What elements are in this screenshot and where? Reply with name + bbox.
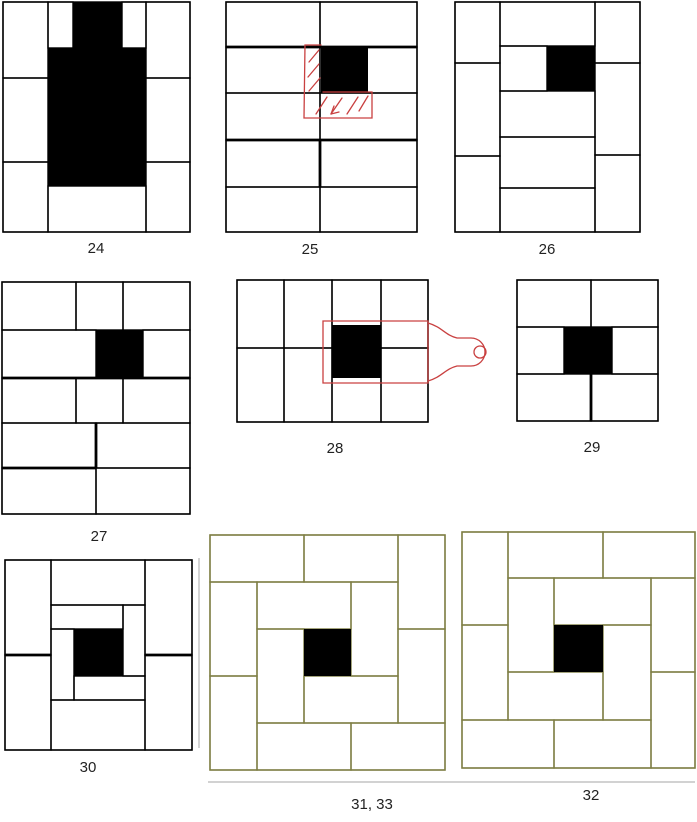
tile-cell (3, 78, 48, 162)
puzzle-diagrams-page: 24 25 26 27 28 29 30 31, 33 32 (0, 0, 697, 822)
black-square (554, 625, 603, 672)
tile-cell (2, 282, 76, 330)
tile-cell (146, 78, 190, 162)
tile-cell (96, 468, 190, 514)
tile-cell (455, 2, 500, 63)
black-square (321, 47, 368, 93)
diagram-26 (455, 2, 640, 232)
tile-cell (237, 348, 284, 422)
tile-cell (595, 63, 640, 155)
tile-cell (51, 560, 145, 605)
caption-28: 28 (299, 440, 371, 457)
tile-cell (76, 282, 123, 330)
diagrams-svg (0, 0, 697, 822)
tile-cell (2, 378, 76, 423)
tile-cell (3, 2, 48, 78)
black-square (74, 629, 123, 676)
black-square (73, 2, 122, 48)
tile-cell (398, 629, 445, 723)
diagram-24 (3, 2, 190, 232)
tile-cell (96, 423, 190, 468)
tile-cell (5, 655, 51, 750)
tile-cell (508, 578, 554, 672)
caption-24: 24 (60, 240, 132, 257)
tile-cell (123, 378, 190, 423)
tile-cell (237, 280, 284, 348)
tile-cell (517, 327, 564, 374)
tile-cell (508, 672, 603, 720)
tile-cell (554, 720, 651, 768)
tile-cell (500, 46, 547, 91)
caption-27: 27 (63, 528, 135, 545)
tile-cell (651, 672, 695, 768)
tile-cell (462, 532, 508, 625)
tile-cell (320, 93, 417, 140)
tile-cell (591, 280, 658, 327)
diagram-31-33 (210, 535, 445, 770)
tile-cell (143, 330, 190, 378)
red-annotation (359, 96, 368, 111)
black-square (564, 327, 612, 374)
red-annotation (309, 50, 319, 62)
tile-cell (51, 605, 123, 629)
tile-cell (257, 629, 304, 723)
tile-cell (304, 676, 398, 723)
diagram-artifacts (199, 558, 695, 782)
red-annotation (331, 98, 342, 114)
tile-cell (145, 655, 192, 750)
tile-cell (210, 676, 257, 770)
tile-cell (320, 140, 417, 187)
tile-cell (146, 162, 190, 232)
tile-cell (595, 155, 640, 232)
diagram-25 (226, 2, 417, 232)
tile-cell (123, 605, 145, 676)
tile-cell (603, 625, 651, 720)
red-annotation (308, 64, 319, 77)
tile-cell (320, 2, 417, 47)
caption-30: 30 (52, 759, 124, 776)
tile-cell (5, 560, 51, 655)
black-square (48, 48, 146, 186)
tile-cell (48, 186, 146, 232)
red-annotation (316, 97, 327, 114)
tile-cell (351, 723, 445, 770)
red-annotation (309, 78, 320, 91)
tile-cell (500, 91, 595, 137)
tile-cell (257, 582, 351, 629)
red-annotation (347, 97, 358, 114)
caption-26: 26 (511, 241, 583, 258)
tile-cell (381, 348, 428, 422)
tile-cell (595, 2, 640, 63)
tile-cell (500, 2, 595, 46)
tile-cell (500, 137, 595, 188)
tile-cell (226, 47, 320, 93)
caption-29: 29 (556, 439, 628, 456)
tile-cell (2, 423, 96, 468)
tile-cell (462, 625, 508, 720)
diagram-30 (5, 560, 192, 750)
tile-cell (455, 156, 500, 232)
tile-cell (651, 578, 695, 672)
tile-cell (2, 468, 96, 514)
diagram-32 (462, 532, 695, 768)
tile-cell (603, 532, 695, 578)
tile-cell (226, 187, 320, 232)
tile-cell (51, 629, 74, 700)
tile-cell (508, 532, 603, 578)
tile-cell (48, 2, 73, 48)
outer-frame (455, 2, 640, 232)
tile-cell (74, 676, 145, 700)
tile-cell (146, 2, 190, 78)
caption-25: 25 (274, 241, 346, 258)
tile-cell (226, 93, 320, 140)
tile-cell (591, 374, 658, 421)
tile-cell (226, 2, 320, 47)
outer-frame (226, 2, 417, 232)
diagram-29 (517, 280, 658, 421)
tile-cell (612, 327, 658, 374)
tile-cell (500, 188, 595, 232)
tile-cell (284, 280, 332, 348)
tile-cell (517, 374, 591, 421)
diagram-27 (2, 282, 190, 514)
tile-cell (2, 330, 96, 378)
black-square (96, 330, 143, 378)
tile-cell (123, 282, 190, 330)
tile-cell (51, 700, 145, 750)
diagram-28 (237, 280, 486, 422)
black-square (547, 46, 595, 91)
tile-cell (257, 723, 351, 770)
caption-32: 32 (555, 787, 627, 804)
red-annotation (428, 323, 485, 381)
tile-cell (210, 582, 257, 676)
caption-31-33: 31, 33 (336, 796, 408, 813)
tile-cell (284, 348, 332, 422)
black-square (332, 325, 381, 378)
tile-cell (210, 535, 304, 582)
tile-cell (304, 535, 398, 582)
tile-cell (145, 560, 192, 655)
tile-cell (462, 720, 554, 768)
black-square (304, 629, 351, 676)
tile-cell (226, 140, 320, 187)
tile-cell (351, 582, 398, 676)
tile-cell (554, 578, 651, 625)
tile-cell (517, 280, 591, 327)
tile-cell (3, 162, 48, 232)
tile-cell (320, 187, 417, 232)
tile-cell (398, 535, 445, 629)
tile-cell (455, 63, 500, 156)
tile-cell (381, 280, 428, 348)
tile-cell (122, 2, 146, 48)
tile-cell (76, 378, 123, 423)
red-annotation (474, 346, 486, 358)
